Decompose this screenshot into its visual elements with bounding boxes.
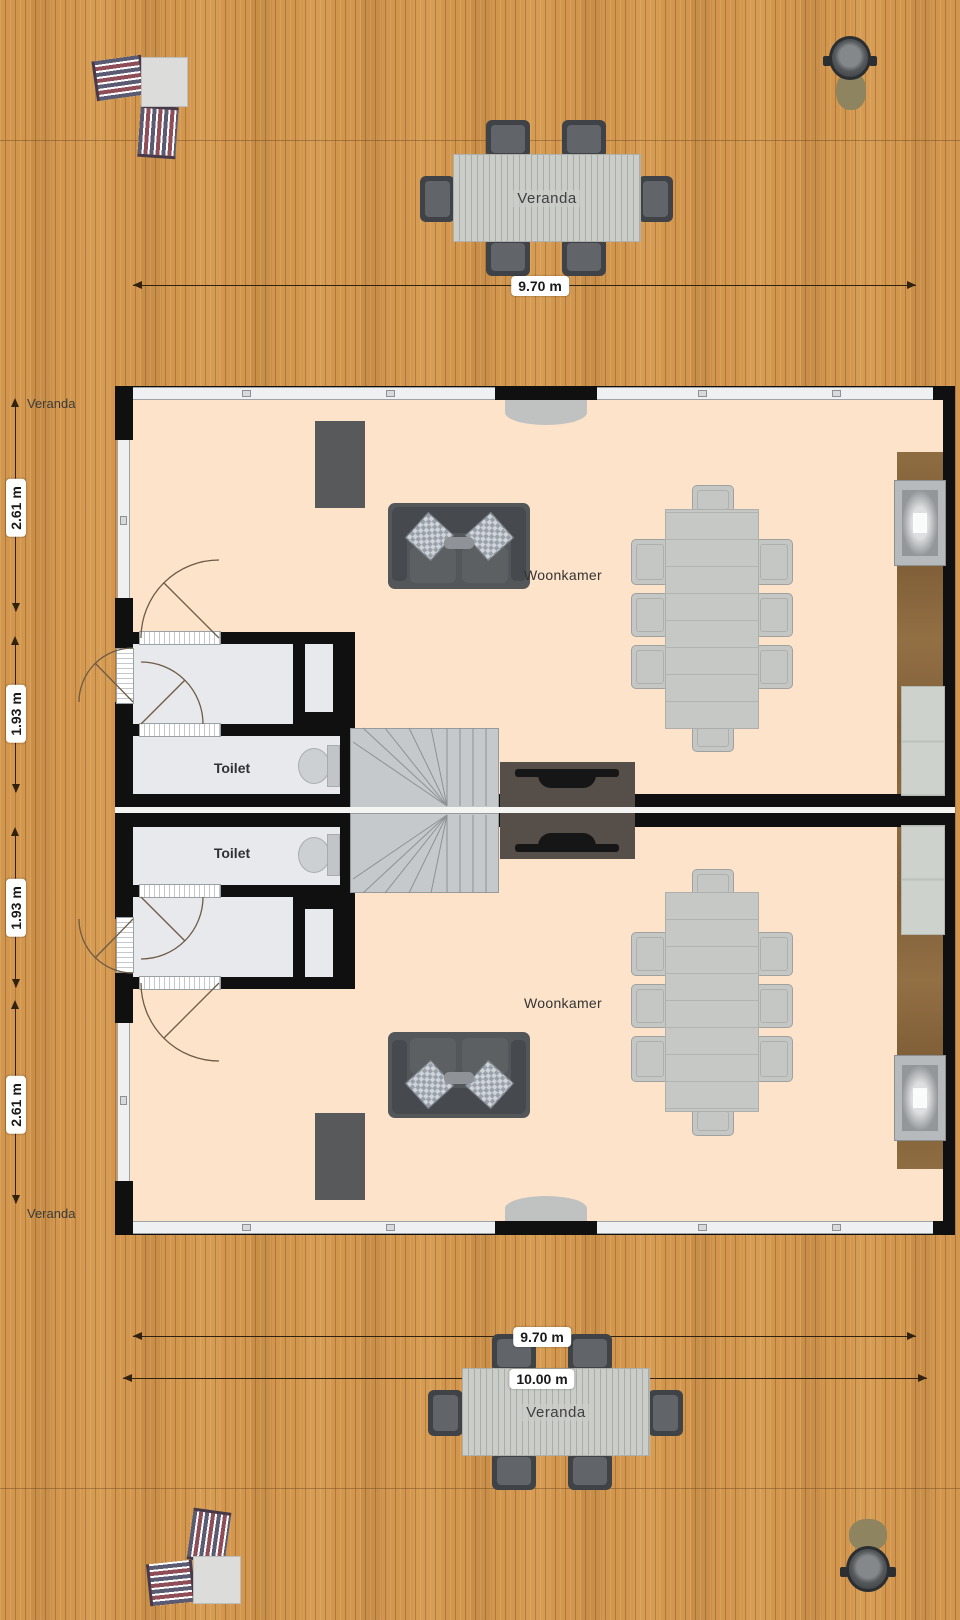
arrowhead <box>133 281 142 289</box>
veranda-chair <box>486 238 530 276</box>
arrowhead <box>12 979 20 988</box>
dining-chair <box>631 1036 669 1082</box>
entry-hall <box>133 897 293 977</box>
wall-left <box>115 973 133 1023</box>
dining-chair <box>755 1036 793 1082</box>
living-room-label: Woonkamer <box>524 995 602 1011</box>
toilet-label: Toilet <box>214 845 250 861</box>
deck-seam <box>0 1488 960 1489</box>
window-front-right <box>597 1221 933 1234</box>
tray <box>444 537 474 549</box>
wall-hall-right <box>293 897 305 977</box>
window-side-left <box>117 1023 130 1181</box>
dimension-label-top-width: 9.70 m <box>511 276 569 296</box>
side-table <box>193 1556 241 1604</box>
closet <box>305 644 333 712</box>
veranda-chair <box>428 1390 463 1436</box>
desk <box>500 813 635 859</box>
door-frame <box>139 884 221 898</box>
dining-chair <box>631 984 669 1028</box>
dining-chair <box>631 593 669 637</box>
dining-chair <box>755 984 793 1028</box>
arrowhead <box>907 281 916 289</box>
bbq-grill-icon <box>829 36 871 80</box>
wall-stair-side <box>333 885 355 977</box>
dining-chair <box>755 593 793 637</box>
toilet-tank <box>327 745 340 787</box>
arrowhead <box>12 603 20 612</box>
desk <box>500 762 635 808</box>
tv-cabinet <box>315 1113 365 1200</box>
window-side-left <box>117 440 130 598</box>
veranda-dining-table-top: Veranda <box>453 154 641 242</box>
side-table <box>141 57 188 107</box>
monitor <box>538 833 596 846</box>
arrowhead <box>12 784 20 793</box>
dimension-label-upper-living: 2.61 m <box>6 479 26 537</box>
tv-cabinet <box>315 421 365 508</box>
dining-table <box>665 892 759 1112</box>
veranda-chair <box>420 176 455 222</box>
arrowhead <box>123 1374 132 1382</box>
party-wall-gap <box>115 807 955 813</box>
door-frame <box>139 976 221 990</box>
unit-upper: Toilet Woonkamer <box>115 386 955 808</box>
entrance-door-arc <box>505 400 587 425</box>
floor-plan-canvas: Veranda 9.70 m Veranda 2.61 m 1.93 m 1.9… <box>0 0 960 1620</box>
window-front-left <box>133 387 495 400</box>
veranda-chair <box>568 1452 612 1490</box>
side-label-veranda-bottom: Veranda <box>27 1206 75 1221</box>
dining-chair <box>631 539 669 585</box>
veranda-chair <box>648 1390 683 1436</box>
beach-chair <box>146 1560 196 1607</box>
wall-hall-right <box>293 644 305 724</box>
dining-chair <box>631 932 669 976</box>
beach-chair <box>137 105 179 160</box>
kitchen-appliance <box>901 686 945 796</box>
toilet-label: Toilet <box>214 760 250 776</box>
dining-table <box>665 509 759 729</box>
beach-chair <box>91 55 146 102</box>
entry-door <box>116 648 134 704</box>
arrowhead <box>133 1332 142 1340</box>
wall-stair-side <box>333 644 355 736</box>
veranda-chair <box>562 120 606 158</box>
entry-door <box>116 917 134 973</box>
dimension-label-lower-entry: 1.93 m <box>6 879 26 937</box>
veranda-chair <box>486 120 530 158</box>
closet <box>305 909 333 977</box>
entrance-door-arc <box>505 1196 587 1221</box>
dining-chair <box>755 645 793 689</box>
door-frame <box>139 723 221 737</box>
dimension-label-bottom-width: 9.70 m <box>513 1327 571 1347</box>
arrowhead <box>12 1195 20 1204</box>
dining-chair <box>755 539 793 585</box>
window-front-right <box>597 387 933 400</box>
entry-hall <box>133 644 293 724</box>
veranda-chair <box>562 238 606 276</box>
sofa <box>388 503 530 589</box>
veranda-table-top-label: Veranda <box>513 190 580 207</box>
dimension-label-upper-entry: 1.93 m <box>6 685 26 743</box>
kitchen-sink <box>894 1055 946 1141</box>
wall-left <box>115 1181 133 1235</box>
wall-left <box>115 386 133 440</box>
wall-left <box>115 598 133 648</box>
veranda-chair <box>568 1334 612 1372</box>
veranda-table-bottom-label: Veranda <box>522 1404 589 1421</box>
stairs <box>350 813 499 893</box>
arrowhead <box>907 1332 916 1340</box>
window-front-left <box>133 1221 495 1234</box>
living-room-label: Woonkamer <box>524 567 602 583</box>
door-frame <box>139 631 221 645</box>
kitchen-appliance <box>901 825 945 935</box>
kitchen-sink <box>894 480 946 566</box>
dining-chair <box>631 645 669 689</box>
dimension-label-bottom-total: 10.00 m <box>509 1369 574 1389</box>
veranda-chair <box>638 176 673 222</box>
monitor <box>538 775 596 788</box>
bbq-grill-icon <box>846 1546 890 1592</box>
dimension-label-lower-living: 2.61 m <box>6 1076 26 1134</box>
toilet-fixture <box>298 837 330 873</box>
veranda-chair <box>492 1452 536 1490</box>
wall-left <box>115 702 133 808</box>
toilet-tank <box>327 834 340 876</box>
dining-chair <box>755 932 793 976</box>
toilet-fixture <box>298 748 330 784</box>
side-label-veranda-top: Veranda <box>27 396 75 411</box>
wall-left <box>115 813 133 919</box>
arrowhead <box>918 1374 927 1382</box>
unit-lower: Toilet Woonkamer <box>115 813 955 1235</box>
tray <box>444 1072 474 1084</box>
sofa <box>388 1032 530 1118</box>
stairs <box>350 728 499 808</box>
